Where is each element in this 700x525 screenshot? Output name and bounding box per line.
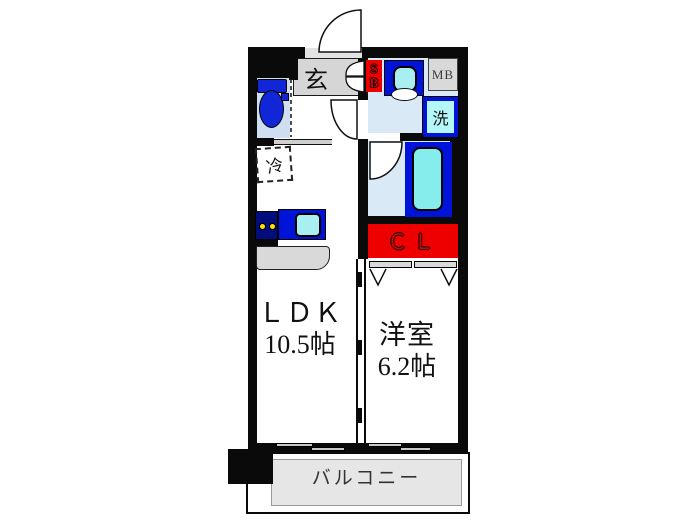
- refrigerator-label: 冷: [263, 150, 286, 178]
- western-window-pane-a: [368, 443, 402, 447]
- wall-top-right: [362, 47, 468, 58]
- burner-dot-right: [269, 223, 276, 230]
- balcony-corner-block: [228, 449, 273, 484]
- refrigerator-space: 冷: [255, 146, 293, 183]
- closet-label: ＣＬ: [387, 226, 439, 256]
- genkan-label-box: 玄: [296, 60, 336, 94]
- wash-basin-front: [391, 88, 418, 101]
- meter-box-label: MB: [432, 67, 454, 83]
- meter-box: MB: [428, 58, 458, 91]
- kitchen-threshold: [274, 139, 332, 145]
- closet-door-right: [414, 261, 457, 268]
- shoe-box: S B: [366, 60, 382, 92]
- kitchen-counter-lower: [256, 246, 330, 270]
- western-room-name: 洋室: [361, 320, 453, 351]
- closet: ＣＬ: [368, 224, 458, 258]
- ldk-window-pane-b: [311, 447, 345, 451]
- ldk-name: ＬＤＫ: [244, 298, 356, 329]
- wall-hall-bathroom: [358, 139, 368, 259]
- genkan-label: 玄: [304, 60, 328, 95]
- washing-machine-label: 洗: [432, 105, 448, 129]
- ldk-label-box: ＬＤＫ 10.5帖: [244, 298, 356, 360]
- washroom-door-swing: [331, 100, 357, 139]
- ldk-area: 10.5帖: [244, 329, 356, 360]
- burner-dot-left: [259, 223, 266, 230]
- bathtub: [412, 147, 443, 211]
- entry-threshold: [305, 48, 362, 58]
- hanger-pipe-left: [370, 269, 386, 285]
- balcony-label: バルコニー: [312, 463, 422, 490]
- ldk-window-pane-a: [276, 443, 313, 447]
- entrance-door-swing: [319, 10, 361, 52]
- shoe-box-label-s: S: [370, 62, 377, 76]
- western-window-pane-b: [400, 447, 431, 451]
- balcony-floor: バルコニー: [271, 459, 462, 506]
- partition-tick-1: [358, 272, 362, 287]
- closet-door-left: [369, 261, 412, 268]
- washing-machine: 洗: [423, 97, 458, 137]
- wall-bathroom-closet: [368, 216, 458, 224]
- toilet-handle: [281, 93, 289, 101]
- western-room-label-box: 洋室 6.2帖: [361, 320, 453, 382]
- wall-toilet-bottom: [248, 138, 274, 146]
- hanger-pipe-right: [441, 269, 457, 285]
- kitchen-sink: [295, 213, 321, 237]
- floorplan: MB S B 洗 冷 ＣＬ バルコニー: [0, 0, 700, 525]
- shoe-box-label-b: B: [370, 76, 379, 90]
- wall-right: [458, 47, 468, 452]
- partition-tick-3: [358, 408, 362, 423]
- western-room-area: 6.2帖: [361, 351, 453, 382]
